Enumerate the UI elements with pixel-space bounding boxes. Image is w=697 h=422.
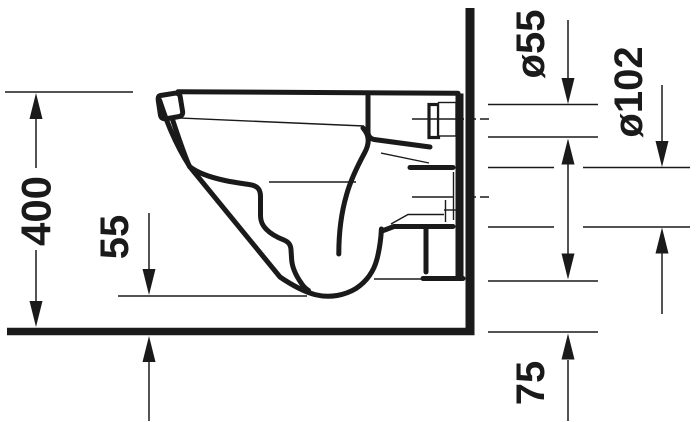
inlet-spud xyxy=(429,105,439,138)
arrowhead-up-floor xyxy=(562,334,575,360)
technical-drawing: 400 55 ø55 ø102 75 xyxy=(0,0,697,422)
dimension-75: 75 xyxy=(488,139,598,422)
arrowhead-down xyxy=(656,141,669,167)
toilet-profile xyxy=(158,92,463,296)
top-surface xyxy=(178,92,458,93)
dimension-400: 400 xyxy=(5,92,133,327)
dimension-55: 55 xyxy=(93,213,307,421)
outlet-step-line xyxy=(391,215,444,225)
toilet-side-section-drawing: 400 55 ø55 ø102 75 xyxy=(0,0,697,422)
arrowhead-up xyxy=(30,93,43,119)
channel-inner-line xyxy=(381,153,429,163)
arrowhead-up xyxy=(562,139,575,165)
dim-label-dia55: ø55 xyxy=(509,10,553,79)
arrowhead-up xyxy=(656,228,669,254)
bowl-back-wall xyxy=(339,128,368,254)
inner-bowl-front xyxy=(173,120,309,291)
arrowhead-down xyxy=(143,269,156,295)
seat-surface-line xyxy=(170,118,364,126)
inlet-fittings xyxy=(429,103,456,138)
arrowhead-up xyxy=(143,336,156,362)
arrowhead-down xyxy=(30,301,43,327)
dim-label-dia102: ø102 xyxy=(607,46,651,137)
arrowhead-down xyxy=(562,254,575,280)
outlet-pipe-bottom xyxy=(382,227,453,232)
dimension-dia55: ø55 xyxy=(488,10,598,137)
arrowhead-down xyxy=(562,78,575,104)
dim-label-75: 75 xyxy=(509,361,553,406)
dim-label-400: 400 xyxy=(13,176,60,246)
flush-channel xyxy=(368,96,430,147)
dim-label-55: 55 xyxy=(93,215,137,260)
dimension-dia102: ø102 xyxy=(488,46,690,314)
